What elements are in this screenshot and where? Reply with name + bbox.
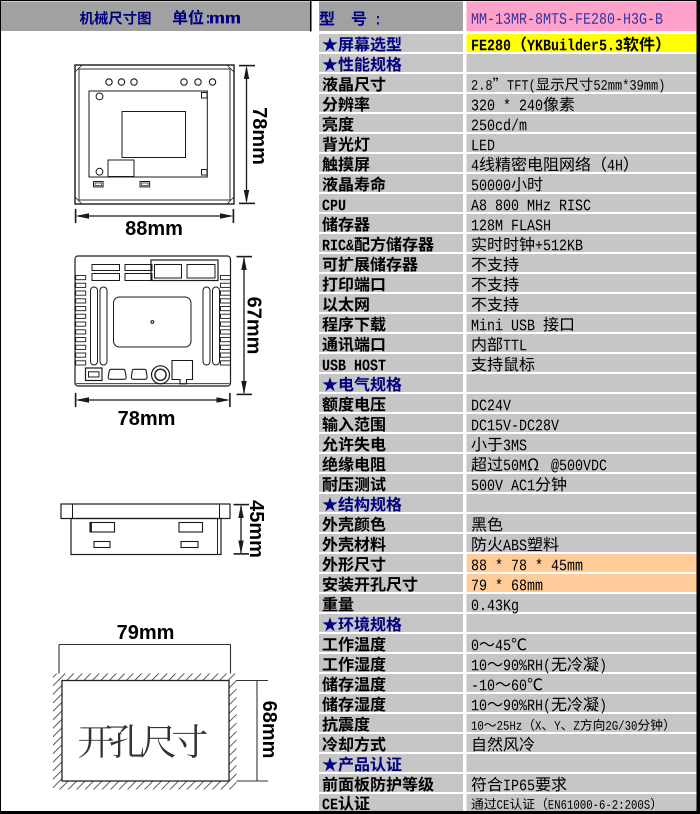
svg-text:78mm: 78mm: [118, 408, 176, 430]
svg-text:45mm: 45mm: [245, 500, 267, 558]
svg-text:67mm: 67mm: [243, 297, 265, 355]
svg-text:88mm: 88mm: [125, 218, 183, 240]
svg-text:79mm: 79mm: [117, 622, 175, 644]
svg-text:68mm: 68mm: [258, 701, 280, 759]
svg-text:78mm: 78mm: [248, 107, 270, 165]
